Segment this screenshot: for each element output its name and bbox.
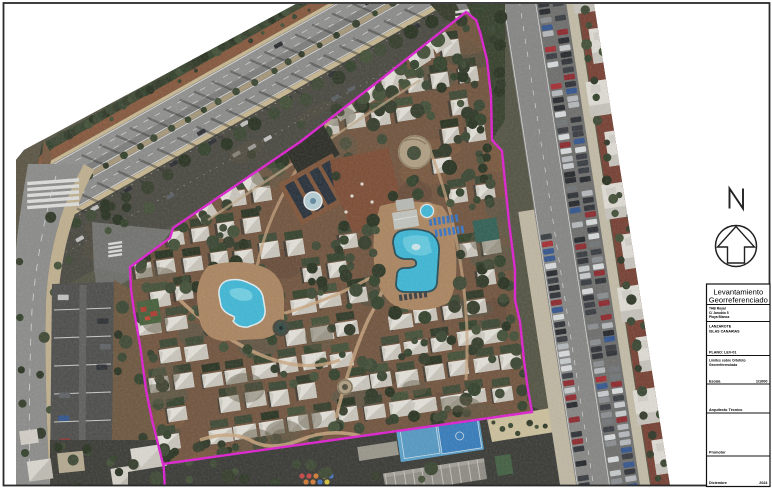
svg-text:1/1000: 1/1000 — [756, 380, 768, 384]
svg-text:Escala: Escala — [709, 380, 721, 384]
svg-text:Georreferenciada: Georreferenciada — [709, 363, 737, 367]
svg-text:Diciembre: Diciembre — [709, 481, 727, 485]
svg-text:LANZAROTE: LANZAROTE — [709, 325, 732, 329]
svg-text:Límites sobre Ortofoto: Límites sobre Ortofoto — [709, 359, 746, 363]
svg-text:PLANO: LEV-01: PLANO: LEV-01 — [709, 351, 736, 355]
svg-text:2024: 2024 — [759, 481, 768, 485]
svg-text:ISLAS CANARIAS: ISLAS CANARIAS — [709, 329, 740, 333]
svg-text:Arquitecto Técnico: Arquitecto Técnico — [709, 408, 743, 412]
svg-text:Promotor: Promotor — [709, 451, 726, 455]
svg-text:Playa Blanca: Playa Blanca — [709, 315, 730, 319]
svg-text:Georreferenciado: Georreferenciado — [709, 296, 768, 305]
